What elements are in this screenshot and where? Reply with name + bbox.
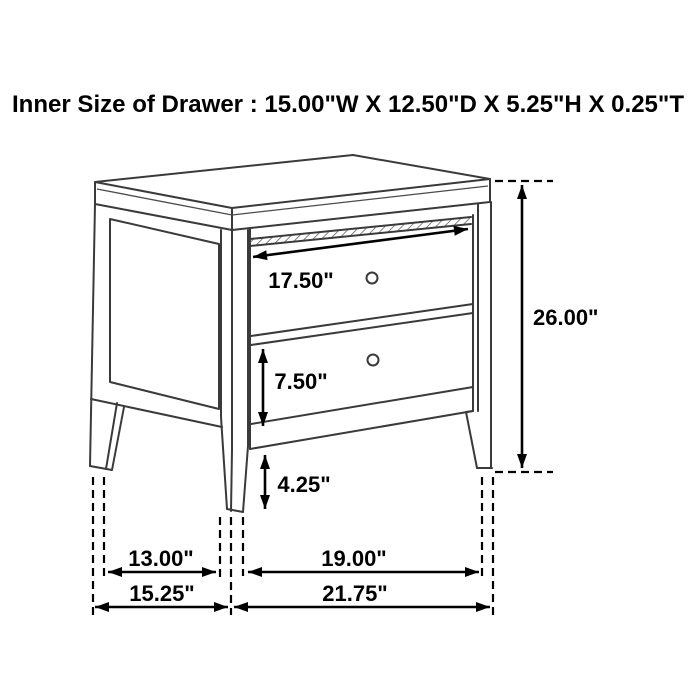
diagram-canvas: Inner Size of Drawer : 15.00"W X 12.50"D…: [0, 0, 700, 700]
front-left-leg-corner-edge: [231, 230, 232, 511]
dim-label-leg-span-depth: 13.00": [128, 546, 193, 571]
dim-label-floor-clearance: 4.25": [277, 472, 330, 497]
dim-label-lower-drawer-height: 7.50": [274, 369, 327, 394]
diagram-title: Inner Size of Drawer : 15.00"W X 12.50"D…: [12, 91, 684, 118]
dim-label-overall-height: 26.00": [533, 305, 598, 330]
dim-label-overall-depth: 15.25": [129, 581, 194, 606]
dim-label-drawer-front-width: 17.50": [268, 268, 333, 293]
dim-label-overall-width: 21.75": [322, 581, 387, 606]
dim-label-leg-span-width: 19.00": [321, 546, 386, 571]
dimension-diagram: Inner Size of Drawer : 15.00"W X 12.50"D…: [0, 0, 700, 700]
